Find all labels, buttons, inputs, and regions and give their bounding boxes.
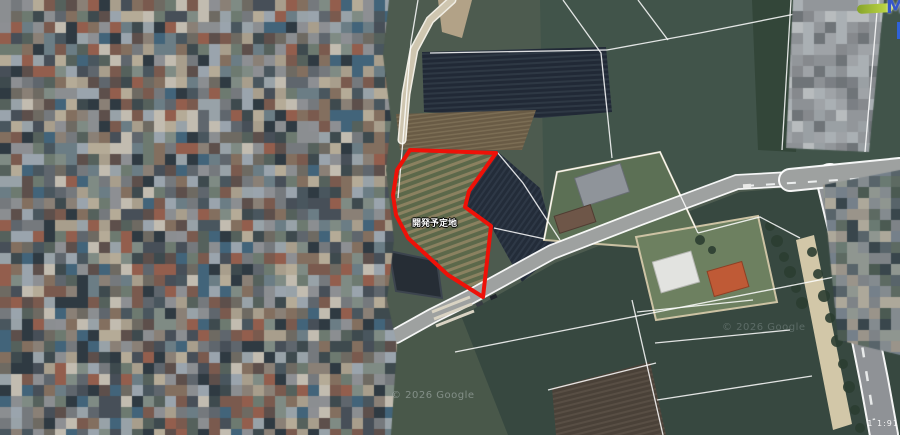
parcel-outline[interactable] [393,150,496,297]
cadastral-line-over-blur [782,0,791,150]
parcel-annotation-layer [0,0,900,435]
cadastral-line-over-blur [865,0,878,152]
map-viewport[interactable]: 開発予定地 © 2026 Google © 2026 Google 1 1:91… [0,0,900,435]
